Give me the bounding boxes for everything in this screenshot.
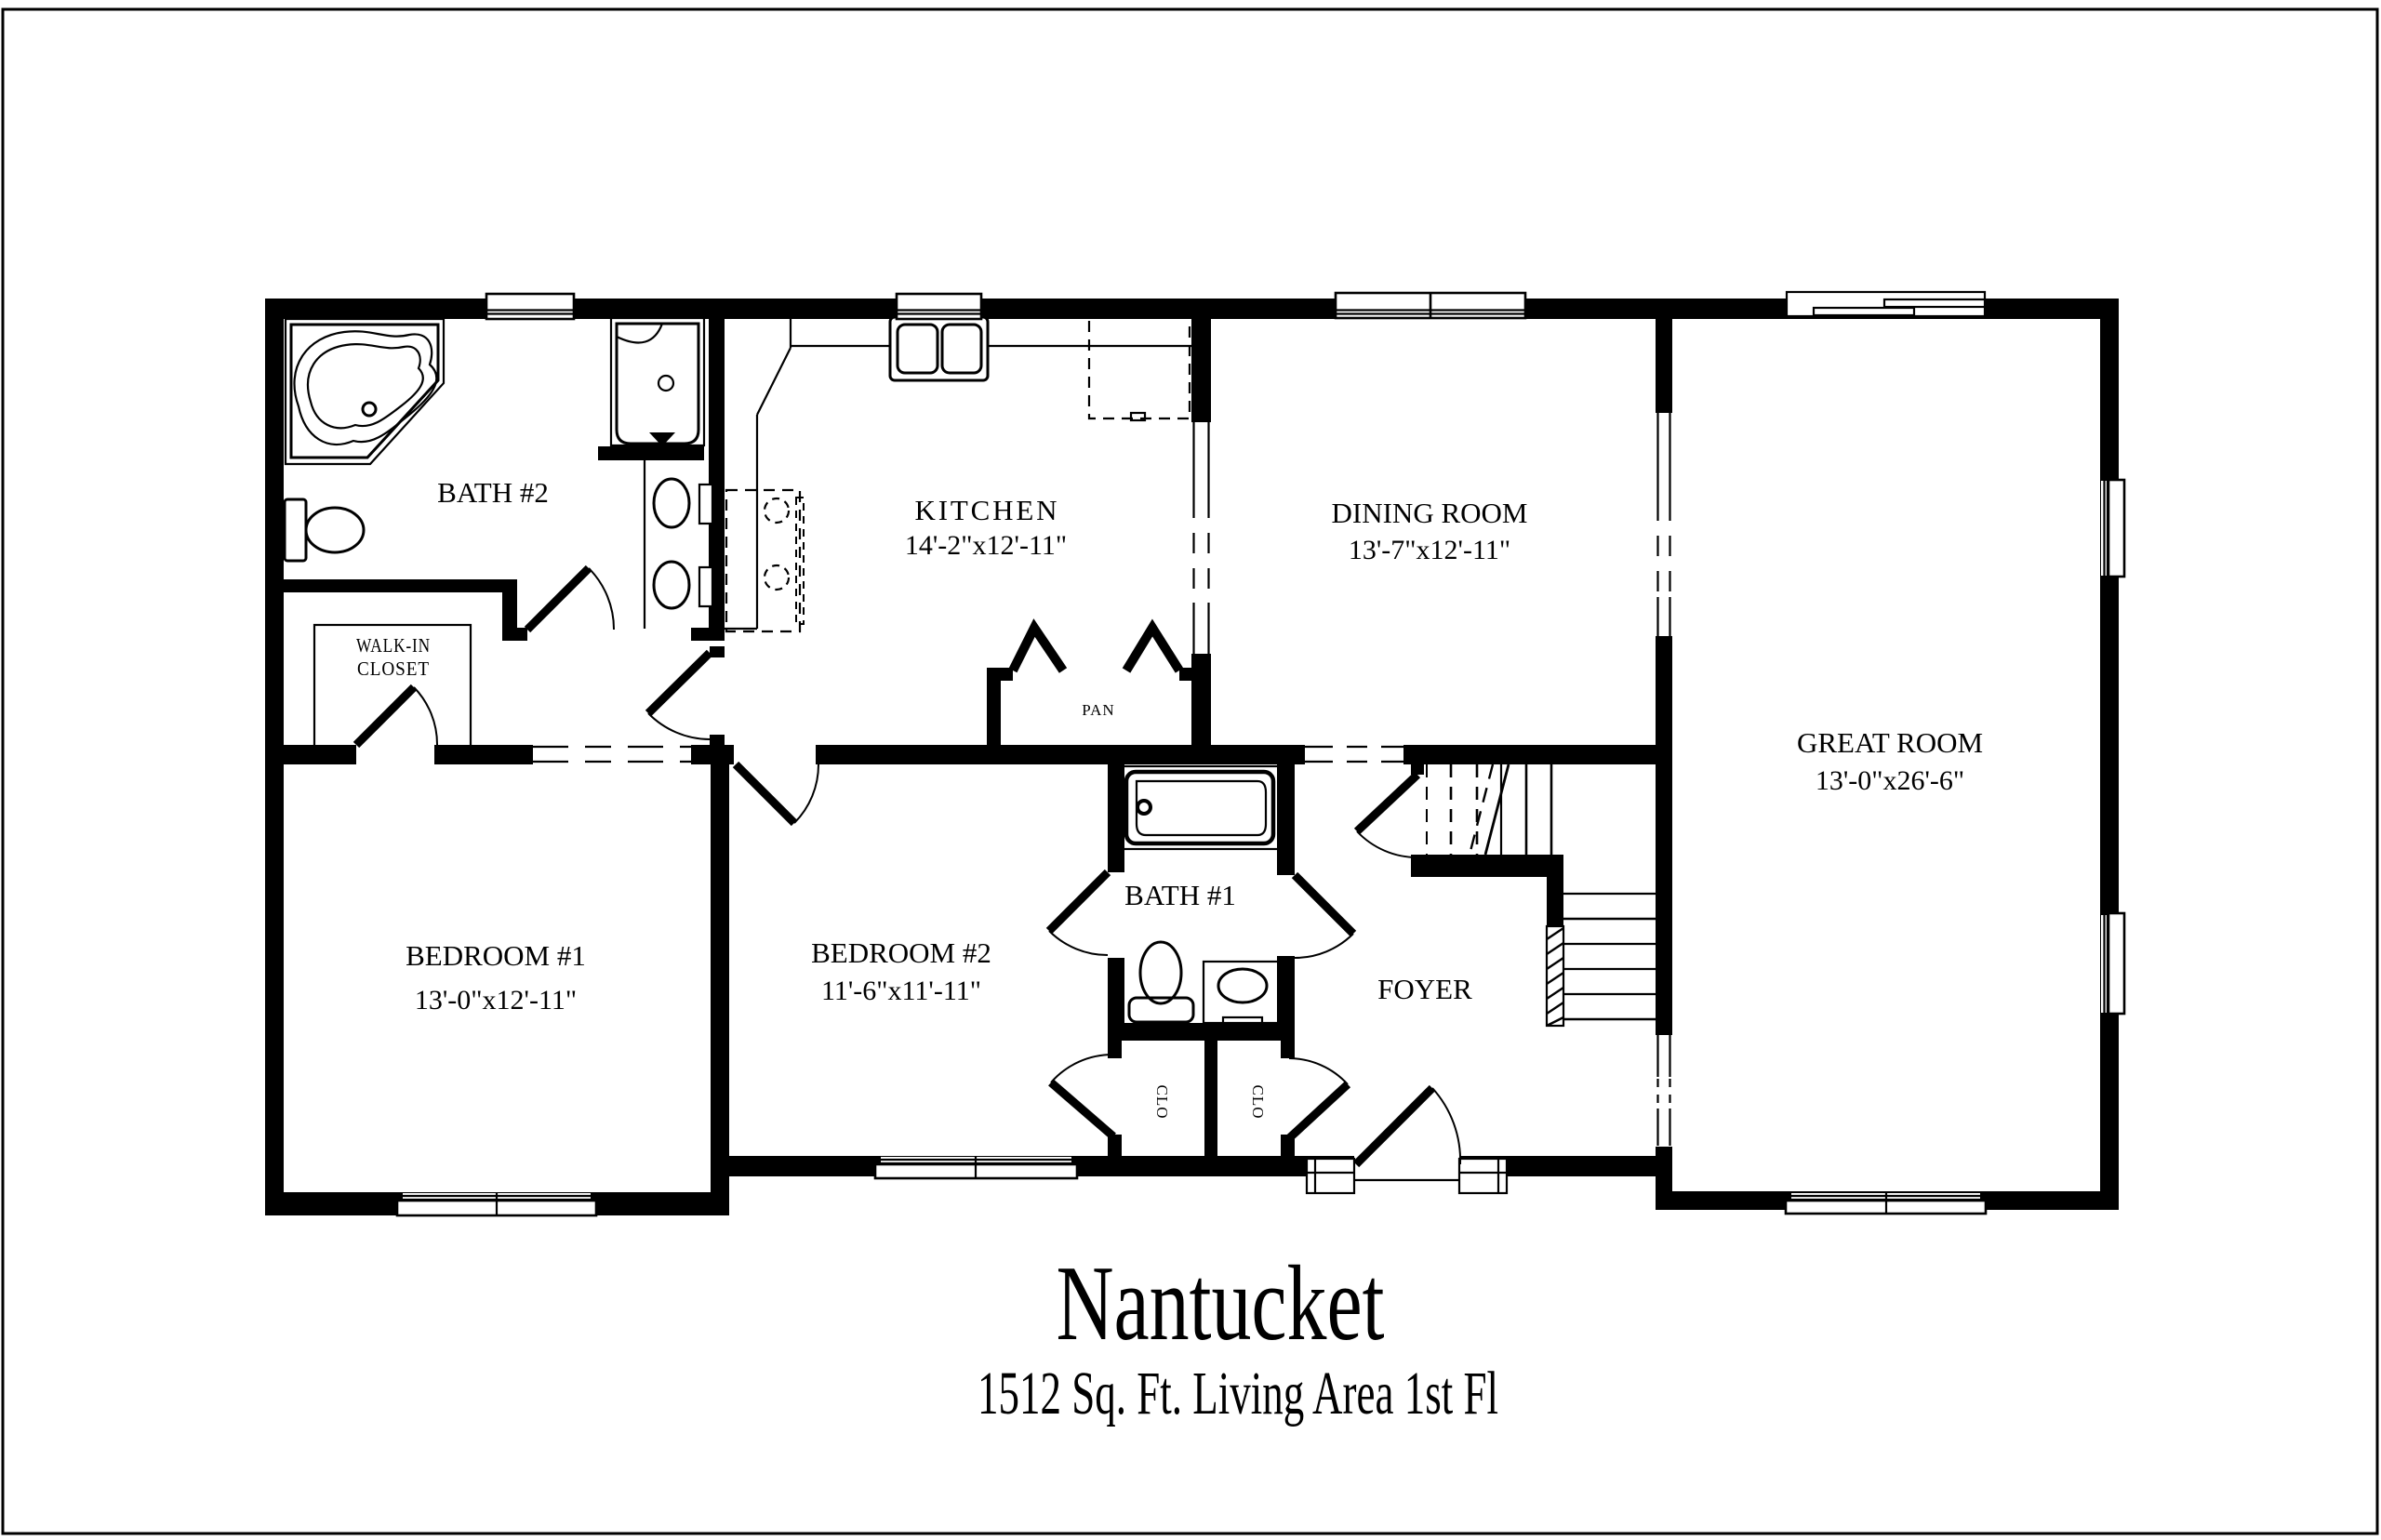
svg-text:BEDROOM #2: BEDROOM #2	[811, 936, 991, 969]
svg-text:CLO: CLO	[1249, 1085, 1267, 1120]
svg-text:CLO: CLO	[1153, 1085, 1171, 1120]
svg-text:14'-2"x12'-11": 14'-2"x12'-11"	[905, 530, 1067, 561]
svg-text:GREAT ROOM: GREAT ROOM	[1797, 726, 1983, 759]
svg-text:FOYER: FOYER	[1377, 973, 1472, 1005]
svg-text:PAN: PAN	[1082, 701, 1114, 719]
svg-text:13'-0"x12'-11": 13'-0"x12'-11"	[415, 985, 577, 1016]
svg-text:BATH #2: BATH #2	[437, 476, 549, 509]
svg-text:13'-0"x26'-6": 13'-0"x26'-6"	[1816, 765, 1964, 796]
svg-text:BATH #1: BATH #1	[1124, 879, 1236, 911]
svg-text:1512 Sq. Ft. Living Area 1st F: 1512 Sq. Ft. Living Area 1st Fl	[978, 1360, 1498, 1427]
svg-text:Nantucket: Nantucket	[1057, 1244, 1385, 1363]
svg-text:13'-7"x12'-11": 13'-7"x12'-11"	[1349, 535, 1510, 565]
svg-text:CLOSET: CLOSET	[357, 657, 430, 680]
svg-text:BEDROOM #1: BEDROOM #1	[406, 939, 586, 972]
svg-text:DINING ROOM: DINING ROOM	[1332, 497, 1528, 529]
svg-text:WALK-IN: WALK-IN	[356, 634, 431, 657]
svg-text:11'-6"x11'-11": 11'-6"x11'-11"	[821, 976, 981, 1006]
